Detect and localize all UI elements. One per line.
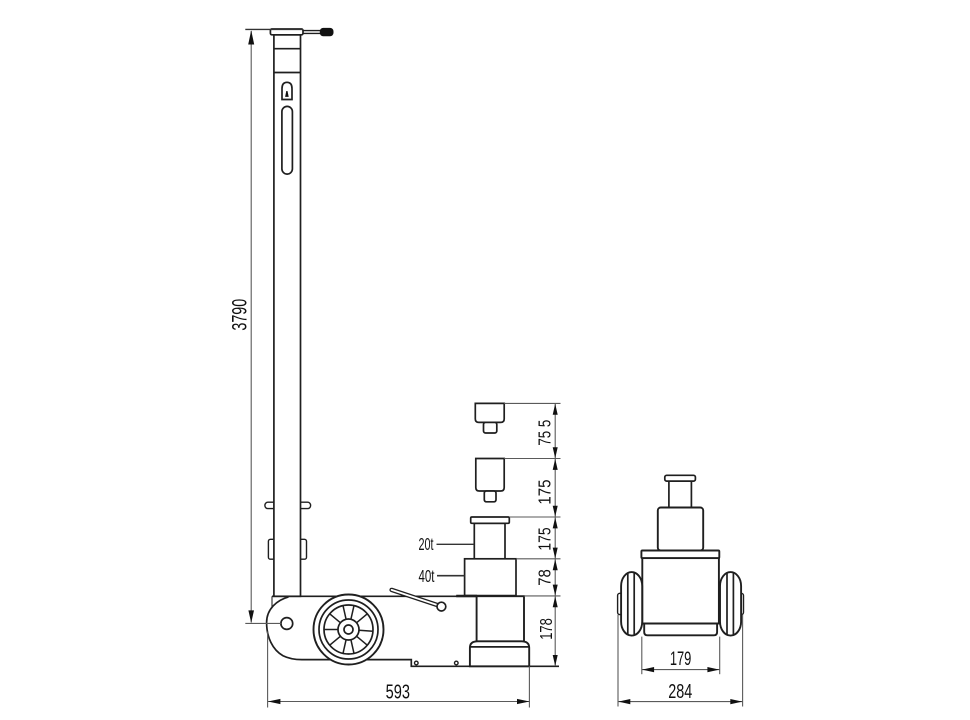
svg-text:178: 178 (536, 618, 556, 640)
svg-text:175: 175 (535, 480, 555, 505)
svg-text:284: 284 (668, 681, 692, 703)
svg-text:75 5: 75 5 (535, 420, 555, 446)
svg-text:175: 175 (535, 527, 555, 550)
svg-text:3790: 3790 (228, 299, 251, 331)
svg-text:20t: 20t (419, 534, 434, 554)
svg-text:78: 78 (535, 569, 555, 586)
svg-text:179: 179 (670, 649, 692, 670)
svg-text:40t: 40t (419, 566, 435, 586)
svg-text:593: 593 (386, 681, 410, 703)
